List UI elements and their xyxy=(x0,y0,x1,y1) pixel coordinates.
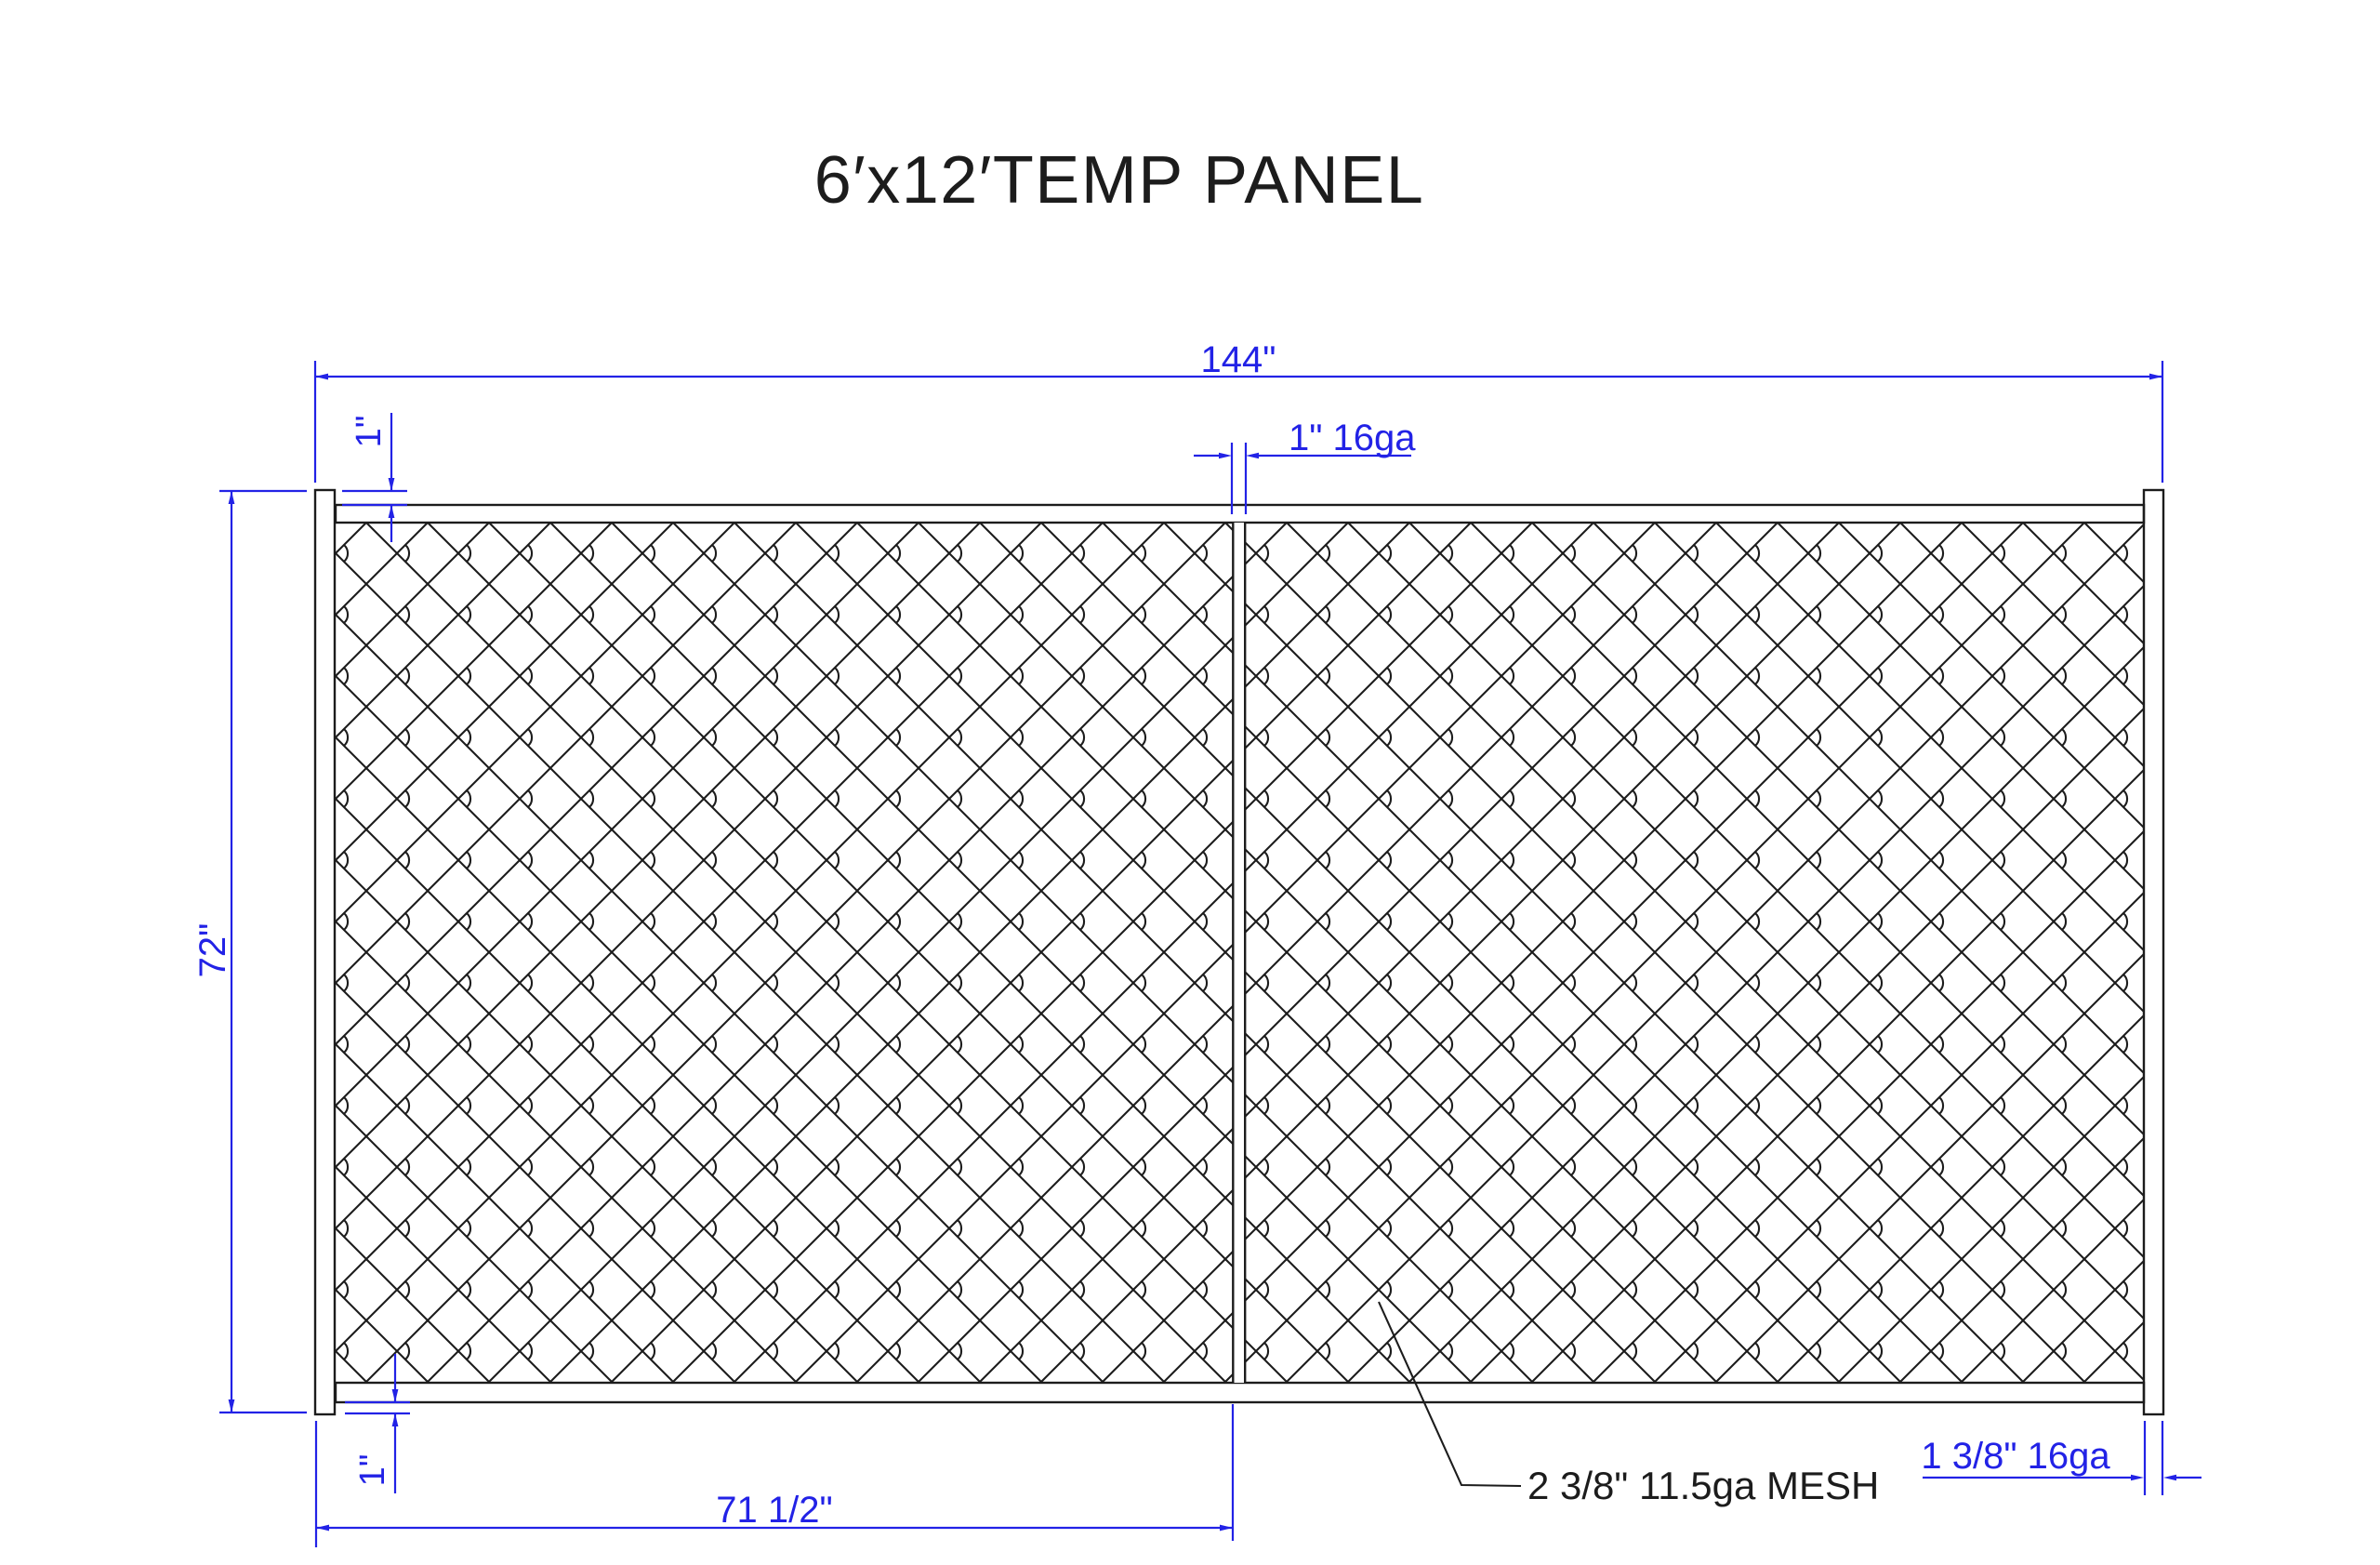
dim-overall-height: 72" xyxy=(192,491,307,1412)
left-post-tube xyxy=(315,490,335,1414)
dim-center-upright: 1" 16ga xyxy=(1194,418,1416,514)
dim-overall-width-label: 144" xyxy=(1201,339,1276,380)
dim-overall-width: 144" xyxy=(315,339,2162,483)
dim-top-rail-offset-label: 1" xyxy=(350,416,389,448)
panel-frame xyxy=(315,490,2163,1414)
temp-panel-drawing: 6′x12′TEMP PANEL 144" 72" xyxy=(0,0,2380,1565)
drawing-canvas: 6′x12′TEMP PANEL 144" 72" xyxy=(0,0,2380,1565)
dim-half-panel-width-label: 71 1/2" xyxy=(716,1490,832,1531)
right-post-tube xyxy=(2144,490,2163,1414)
center-upright-tube xyxy=(1233,523,1245,1383)
top-rail-tube xyxy=(336,505,2144,523)
bottom-rail-tube xyxy=(336,1383,2144,1402)
drawing-title: 6′x12′TEMP PANEL xyxy=(814,143,1425,218)
dim-half-panel-width: 71 1/2" xyxy=(316,1404,1233,1547)
mesh-callout-label: 2 3/8" 11.5ga MESH xyxy=(1527,1464,1879,1507)
dim-frame-tube-label: 1 3/8" 16ga xyxy=(1921,1436,2110,1477)
dim-bottom-rail-offset-label: 1" xyxy=(353,1454,392,1487)
dim-overall-height-label: 72" xyxy=(192,923,233,978)
dim-center-upright-label: 1" 16ga xyxy=(1289,418,1416,458)
dim-frame-tube: 1 3/8" 16ga xyxy=(1921,1421,2201,1495)
